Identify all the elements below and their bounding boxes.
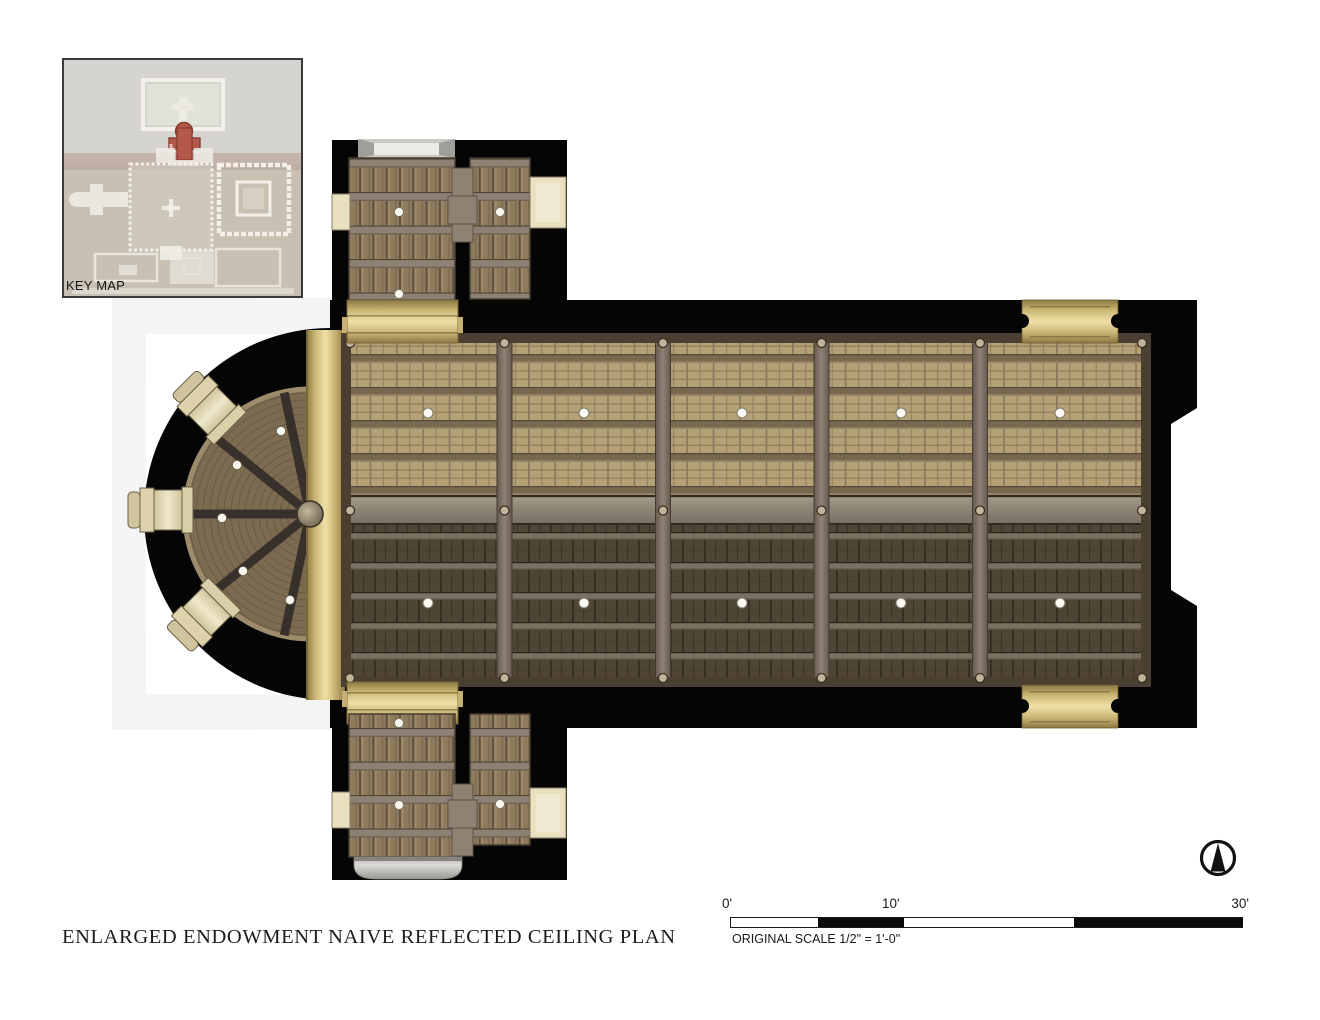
bottom-transept-left-panel [349, 714, 455, 857]
scale-bar: 0' 10' 30' ORIGINAL SCALE 1/2" = 1'-0" [722, 896, 1249, 946]
apse-fan-hub [297, 501, 323, 527]
bottom-transept-right-panel [470, 714, 530, 845]
nave-upper-ceiling [351, 343, 1141, 497]
top-transept-right-panel [470, 158, 530, 299]
top-transept-pier [448, 168, 477, 242]
scale-caption: ORIGINAL SCALE 1/2" = 1'-0" [732, 932, 1249, 946]
scale-tick-10: 10' [882, 896, 922, 911]
scale-tick-0: 0' [722, 896, 732, 911]
top-entry-skylight [358, 139, 455, 158]
scale-bar-graphic [730, 917, 1243, 928]
bottom-entry-base [354, 857, 462, 879]
north-arrow [1196, 836, 1240, 880]
nave-spine [351, 497, 1141, 524]
drawing-sheet: KEY MAP [0, 0, 1320, 1020]
scale-bar-segment-dark-2 [1074, 918, 1243, 927]
nave [346, 338, 1147, 684]
east-wall-opening [1171, 408, 1197, 606]
south-east-column [1015, 685, 1125, 728]
scale-bar-segment-dark-1 [818, 918, 904, 927]
scale-tick-30: 30' [1231, 896, 1249, 911]
ceiling-plan [0, 0, 1320, 1020]
nave-spine-line-top [351, 495, 1141, 497]
top-transept-arch [342, 300, 463, 343]
apse-niche-left [128, 487, 193, 533]
bottom-transept-pier [448, 784, 477, 856]
top-transept-left-panel [349, 158, 455, 300]
north-arrow-icon [1196, 836, 1240, 880]
scale-tick-labels: 0' 10' 30' [722, 896, 1249, 912]
nave-spine-line-bottom [351, 523, 1141, 525]
drawing-title: ENLARGED ENDOWMENT NAIVE REFLECTED CEILI… [62, 926, 676, 949]
north-east-column [1015, 300, 1125, 343]
